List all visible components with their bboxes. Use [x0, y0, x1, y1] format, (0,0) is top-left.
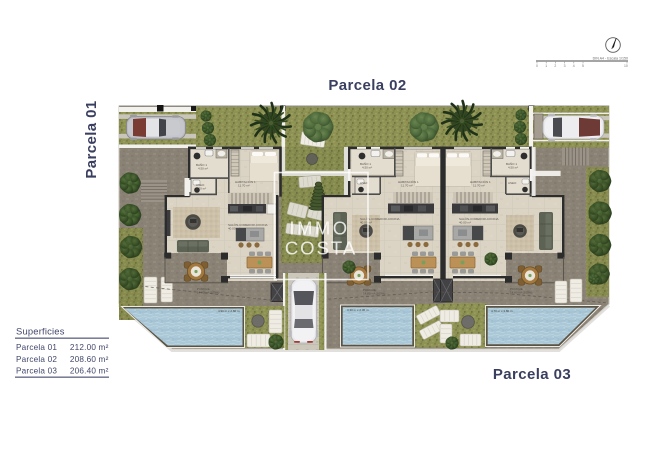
svg-text:1: 1 [545, 64, 547, 68]
svg-text:4: 4 [573, 64, 575, 68]
svg-text:Parcela 03: Parcela 03 [493, 366, 571, 383]
svg-text:14.60 m² (100%): 14.60 m² (100%) [510, 290, 532, 294]
svg-text:Parcela 01: Parcela 01 [16, 343, 57, 352]
svg-text:206.40 m²: 206.40 m² [70, 367, 109, 376]
svg-text:11.70 m²: 11.70 m² [238, 184, 250, 188]
svg-text:40.00 m²: 40.00 m² [228, 227, 240, 231]
svg-text:10: 10 [624, 64, 628, 68]
svg-text:11.70 m²: 11.70 m² [401, 184, 413, 188]
svg-text:2.70 m²: 2.70 m² [196, 187, 206, 191]
svg-text:4.50 m²: 4.50 m² [362, 166, 372, 170]
svg-text:5: 5 [582, 64, 584, 68]
svg-text:4.50 m²: 4.50 m² [198, 167, 208, 171]
svg-text:4.50 m²: 4.50 m² [508, 166, 518, 170]
svg-text:DIN A4 - Escala 1/150: DIN A4 - Escala 1/150 [593, 56, 628, 60]
svg-text:Parcela 03: Parcela 03 [16, 367, 57, 376]
svg-text:Parcela 02: Parcela 02 [328, 77, 406, 94]
svg-text:40.00 m²: 40.00 m² [360, 221, 372, 225]
svg-text:Superficies: Superficies [16, 326, 65, 337]
svg-text:4.90 m x 2.80 m: 4.90 m x 2.80 m [218, 309, 240, 313]
svg-text:14.80 m² (100%): 14.80 m² (100%) [197, 290, 219, 294]
svg-text:ASEO: ASEO [508, 181, 517, 185]
svg-text:Parcela 01: Parcela 01 [83, 100, 100, 178]
svg-text:40.00 m²: 40.00 m² [459, 221, 471, 225]
svg-text:208.60 m²: 208.60 m² [70, 355, 109, 364]
svg-text:212.00 m²: 212.00 m² [70, 343, 109, 352]
svg-text:11.70 m²: 11.70 m² [473, 184, 485, 188]
svg-text:2: 2 [554, 64, 556, 68]
svg-text:14.80 m² (100%): 14.80 m² (100%) [363, 291, 385, 295]
svg-text:0: 0 [536, 64, 538, 68]
svg-text:3.30 m x 2.30 m: 3.30 m x 2.30 m [347, 308, 369, 312]
svg-text:4.70 m x 3.80 m: 4.70 m x 3.80 m [491, 309, 513, 313]
svg-text:IMMO: IMMO [289, 218, 349, 239]
svg-text:3: 3 [564, 64, 566, 68]
svg-text:COSTA: COSTA [285, 238, 357, 259]
svg-text:Parcela 02: Parcela 02 [16, 355, 57, 364]
